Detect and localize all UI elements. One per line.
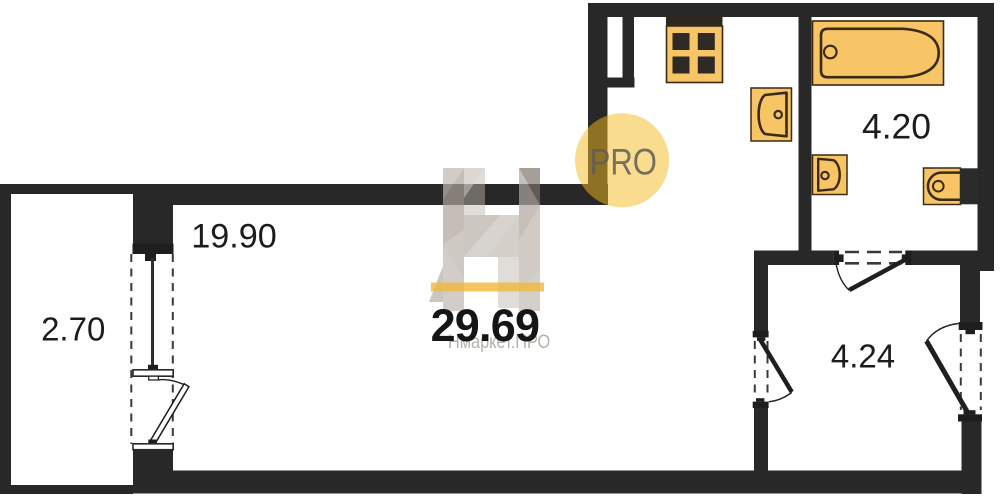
svg-text:2.70: 2.70 — [41, 310, 105, 347]
svg-text:19.90: 19.90 — [191, 218, 277, 256]
svg-text:4.24: 4.24 — [831, 338, 895, 375]
svg-text:4.20: 4.20 — [862, 107, 931, 147]
svg-text:29.69: 29.69 — [431, 300, 540, 351]
svg-text:PRO: PRO — [590, 142, 657, 183]
